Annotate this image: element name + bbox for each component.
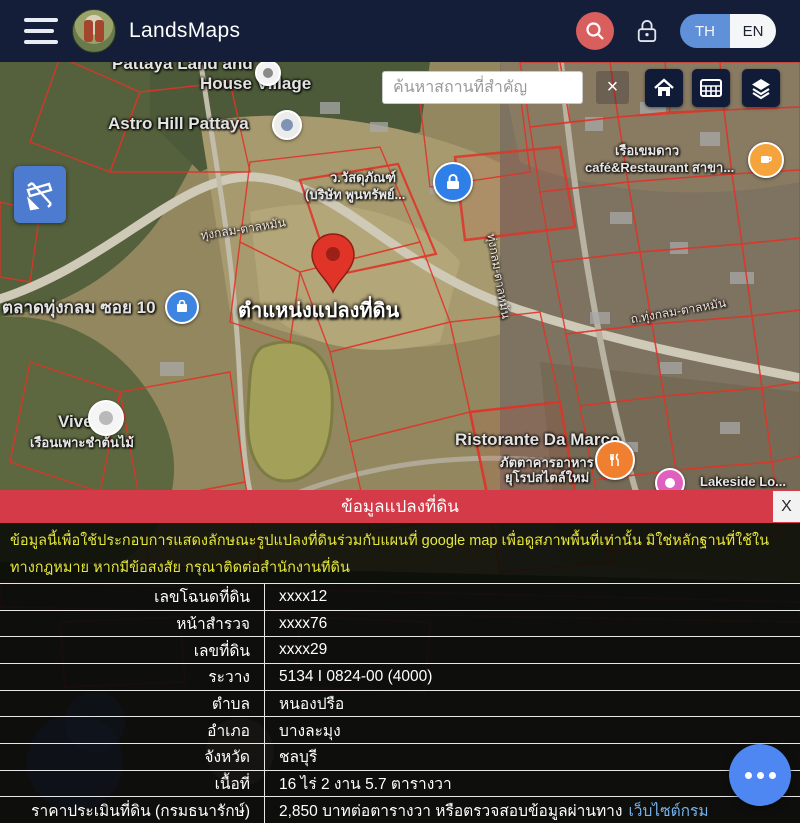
table-row: เลขโฉนดที่ดิน xxxx12: [0, 583, 800, 610]
search-icon: [585, 21, 605, 41]
table-row: ตำบล หนองปรือ: [0, 690, 800, 717]
ellipsis-icon: [757, 772, 764, 779]
table-row: ราคาประเมินที่ดิน (กรมธนารักษ์) 2,850 บา…: [0, 796, 800, 823]
row-value: 2,850 บาทต่อตารางวา หรือตรวจสอบข้อมูลผ่า…: [265, 797, 800, 823]
login-lock-icon[interactable]: [636, 18, 658, 44]
table-row: หน้าสำรวจ xxxx76: [0, 610, 800, 637]
row-value-text: 5134 I 0824-00 (4000): [279, 668, 432, 686]
map-search-input[interactable]: [382, 71, 583, 104]
panel-close-button[interactable]: X: [773, 491, 800, 522]
grid-icon: [700, 79, 722, 97]
row-label: เลขที่ดิน: [0, 637, 265, 663]
lands-department-logo: [72, 9, 116, 53]
row-label: เลขโฉนดที่ดิน: [0, 584, 265, 610]
parcel-info-banner: ข้อมูลแปลงที่ดิน X: [0, 490, 800, 523]
grid-view-button[interactable]: [692, 69, 730, 107]
row-value: ชลบุรี: [265, 744, 800, 770]
row-value-text: xxxx12: [279, 588, 327, 606]
row-value: บางละมุง: [265, 717, 800, 743]
app-title: LandsMaps: [129, 19, 240, 43]
layers-button[interactable]: [742, 69, 780, 107]
panel-title: ข้อมูลแปลงที่ดิน: [341, 493, 459, 520]
department-website-link[interactable]: เว็บไซต์กรม: [628, 798, 708, 823]
table-row: ระวาง 5134 I 0824-00 (4000): [0, 663, 800, 690]
row-label: ราคาประเมินที่ดิน (กรมธนารักษ์): [0, 797, 265, 823]
pencil-ruler-icon: [23, 178, 57, 212]
table-row: เนื้อที่ 16 ไร่ 2 งาน 5.7 ตารางวา: [0, 770, 800, 797]
row-value: 16 ไร่ 2 งาน 5.7 ตารางวา: [265, 771, 800, 797]
restaurant-marker-icon[interactable]: [595, 440, 635, 480]
row-value-text: 16 ไร่ 2 งาน 5.7 ตารางวา: [279, 771, 452, 796]
cafe-marker-icon[interactable]: [748, 142, 784, 178]
layers-icon: [749, 76, 773, 100]
row-value-text: xxxx76: [279, 615, 327, 633]
row-label: หน้าสำรวจ: [0, 611, 265, 637]
landsmaps-app: Pattaya Land and House Village Astro Hil…: [0, 0, 800, 823]
table-row: อำเภอ บางละมุง: [0, 716, 800, 743]
lock-marker-icon[interactable]: [433, 162, 473, 202]
draw-measure-tools-button[interactable]: [14, 166, 66, 223]
row-value-text: xxxx29: [279, 641, 327, 659]
shop-marker-icon[interactable]: [165, 290, 199, 324]
ellipsis-icon: [769, 772, 776, 779]
parcel-location-pin-icon: [310, 232, 356, 294]
row-label: ระวาง: [0, 664, 265, 690]
table-row: จังหวัด ชลบุรี: [0, 743, 800, 770]
parcel-info-table: เลขโฉนดที่ดิน xxxx12 หน้าสำรวจ xxxx76 เล…: [0, 583, 800, 823]
row-label: ตำบล: [0, 691, 265, 717]
row-value: xxxx76: [265, 611, 800, 637]
row-value-text: หนองปรือ: [279, 691, 344, 716]
disclaimer-text: ข้อมูลนี้เพื่อใช้ประกอบการแสดงลักษณะรูปแ…: [0, 523, 800, 583]
ellipsis-icon: [745, 772, 752, 779]
row-value: xxxx12: [265, 584, 800, 610]
lang-th-option[interactable]: TH: [680, 14, 730, 48]
row-label: เนื้อที่: [0, 771, 265, 797]
row-value: 5134 I 0824-00 (4000): [265, 664, 800, 690]
language-toggle[interactable]: TH EN: [680, 14, 776, 48]
row-value: xxxx29: [265, 637, 800, 663]
row-label: จังหวัด: [0, 744, 265, 770]
search-clear-button[interactable]: ×: [596, 71, 629, 104]
home-button[interactable]: [645, 69, 683, 107]
header-search-button[interactable]: [576, 12, 614, 50]
row-value-text: ชลบุรี: [279, 744, 317, 769]
row-value-text: บางละมุง: [279, 718, 341, 743]
row-value-text: 2,850 บาทต่อตารางวา หรือตรวจสอบข้อมูลผ่า…: [279, 798, 622, 823]
row-value: หนองปรือ: [265, 691, 800, 717]
lang-en-option[interactable]: EN: [730, 14, 776, 48]
menu-button[interactable]: [24, 18, 58, 44]
app-header: LandsMaps TH EN: [0, 0, 800, 62]
more-actions-fab[interactable]: [729, 744, 791, 806]
poi-marker-icon[interactable]: [272, 110, 302, 140]
row-label: อำเภอ: [0, 717, 265, 743]
home-icon: [653, 77, 675, 99]
table-row: เลขที่ดิน xxxx29: [0, 636, 800, 663]
poi-marker-icon[interactable]: [88, 400, 124, 436]
